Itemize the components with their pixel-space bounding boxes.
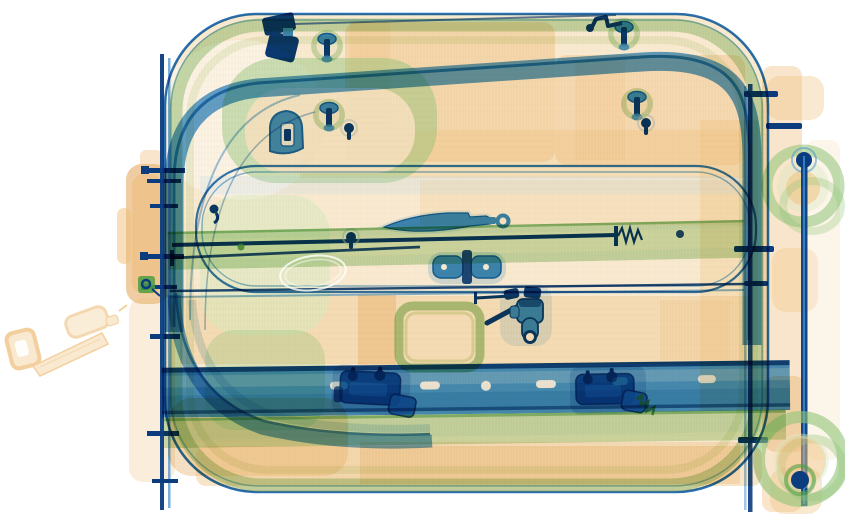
trolley-assembly xyxy=(734,66,843,514)
zipper-lobe xyxy=(523,286,541,299)
rivet-dot xyxy=(676,230,684,238)
hinge-plate-left xyxy=(433,256,463,278)
trolley-crossbar xyxy=(744,91,778,97)
zipper-body-top xyxy=(519,299,541,307)
trolley-crossbar xyxy=(766,123,802,129)
rail-crossbar xyxy=(144,254,184,259)
rail-vertical-inner xyxy=(168,58,171,508)
latch-hook xyxy=(333,386,343,402)
strap-stitch xyxy=(40,339,100,367)
zipper-wing xyxy=(510,306,519,318)
rail-crossbar xyxy=(152,479,178,483)
rail-crossbar xyxy=(145,168,185,173)
trolley-crossbar xyxy=(744,281,768,286)
d-lock-keyway xyxy=(284,129,291,141)
strap-fragment-line xyxy=(119,305,127,311)
rail-bolt xyxy=(141,166,149,174)
rail-vertical xyxy=(160,54,164,510)
wheel-bottom-axle xyxy=(791,471,809,489)
telescopic-handle-tube xyxy=(748,84,753,512)
trolley-crossbar xyxy=(734,246,774,252)
latch-plate xyxy=(388,393,417,418)
rail-crossbar xyxy=(150,334,180,339)
rail-crossbar xyxy=(147,431,179,436)
rail-crossbar xyxy=(147,179,181,183)
zipper-pull-ring xyxy=(525,332,536,343)
bottom-frame-band xyxy=(162,360,791,418)
xray-scan-image xyxy=(0,0,845,515)
xray-suitcase-scene xyxy=(0,0,845,515)
external-strap-with-buckle xyxy=(5,304,127,376)
elbow-wire-end xyxy=(586,24,594,32)
latch-lock-right xyxy=(570,365,655,416)
hinge-hole xyxy=(483,264,489,270)
green-dot xyxy=(238,244,245,251)
blade-ring-hole xyxy=(501,219,506,224)
handle-tab xyxy=(140,150,162,168)
trolley-lump xyxy=(766,76,824,120)
zipper-rod-cap xyxy=(474,292,477,304)
comma-hook xyxy=(210,205,219,214)
latch-panel xyxy=(585,385,621,398)
rail-bolt xyxy=(140,252,148,260)
hinge-plates xyxy=(428,250,506,284)
band-slot xyxy=(536,380,556,388)
rail-crossbar xyxy=(150,204,178,208)
strap-webbing xyxy=(33,333,108,376)
latch-lock-left xyxy=(331,364,419,418)
band-slot xyxy=(420,381,440,389)
telescopic-handle-tube-inner xyxy=(744,86,747,510)
blade-neck xyxy=(488,217,496,224)
band-slot xyxy=(698,375,716,383)
latch-panel xyxy=(349,382,388,397)
hinge-pin xyxy=(462,250,472,284)
handle-tab xyxy=(117,208,131,264)
corner-bracket-joint xyxy=(283,28,293,36)
rod-t-cap xyxy=(614,226,618,246)
hinge-hole xyxy=(441,264,447,270)
